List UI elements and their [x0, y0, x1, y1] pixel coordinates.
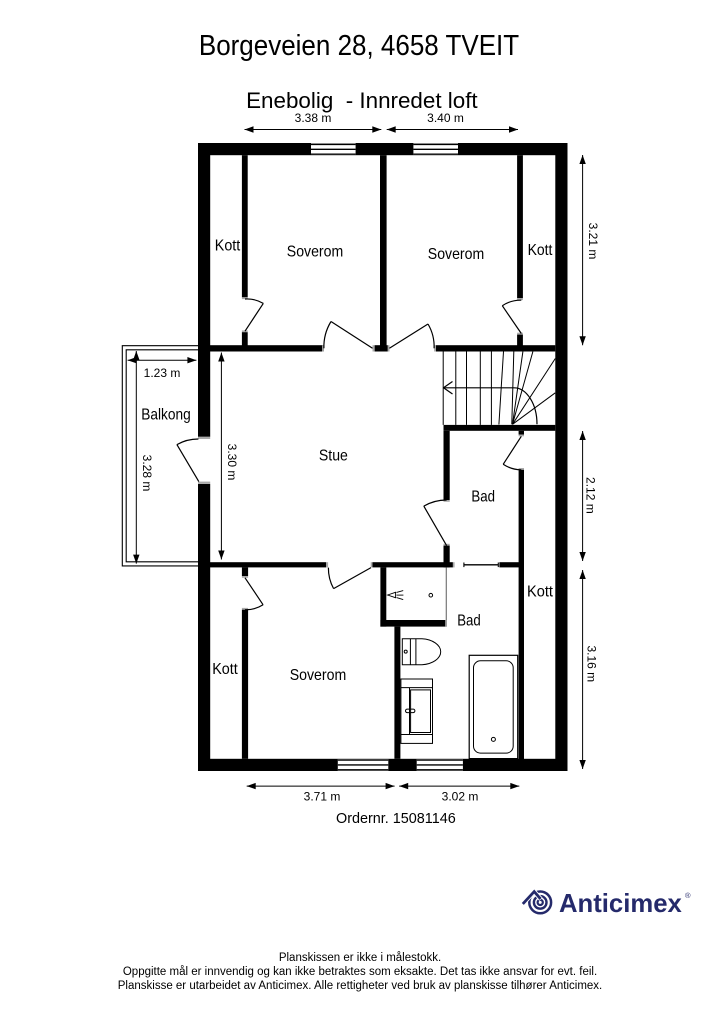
svg-text:Bad: Bad: [457, 612, 481, 629]
svg-text:Stue: Stue: [319, 447, 348, 464]
svg-text:Kott: Kott: [215, 238, 241, 255]
svg-text:3.21 m: 3.21 m: [586, 223, 600, 260]
svg-text:Kott: Kott: [528, 242, 553, 259]
svg-text:Soverom: Soverom: [287, 244, 343, 261]
svg-text:Bad: Bad: [471, 488, 495, 505]
svg-text:®: ®: [685, 891, 691, 900]
svg-text:Anticimex: Anticimex: [559, 890, 682, 918]
svg-text:3.30 m: 3.30 m: [225, 444, 239, 481]
svg-text:3.38 m: 3.38 m: [295, 111, 332, 125]
svg-text:3.16 m: 3.16 m: [584, 645, 598, 682]
svg-text:Soverom: Soverom: [428, 246, 484, 263]
svg-text:3.40 m: 3.40 m: [427, 111, 464, 125]
svg-text:Kott: Kott: [212, 661, 238, 678]
svg-text:Balkong: Balkong: [141, 406, 190, 423]
svg-text:Soverom: Soverom: [290, 667, 347, 684]
svg-text:1.23 m: 1.23 m: [144, 366, 181, 380]
svg-text:2.12 m: 2.12 m: [583, 477, 597, 514]
svg-text:3.71 m: 3.71 m: [304, 790, 341, 804]
svg-text:3.02 m: 3.02 m: [442, 790, 479, 804]
svg-text:3.28 m: 3.28 m: [140, 455, 154, 492]
svg-text:Kott: Kott: [527, 584, 553, 601]
